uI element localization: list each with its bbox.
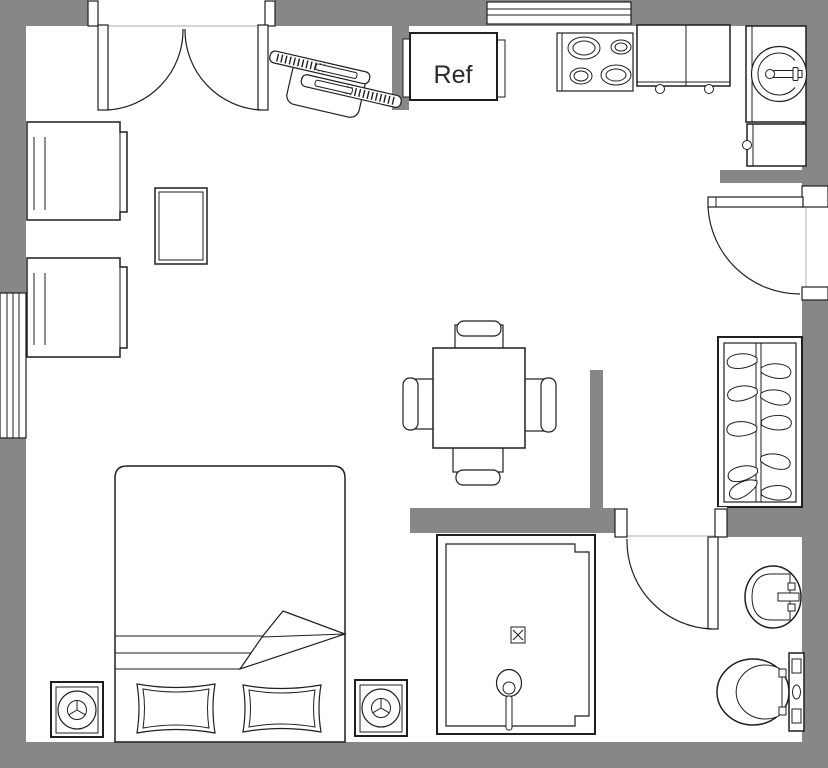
wall-bathroom-right <box>727 507 802 537</box>
door-leaf-left <box>98 25 108 110</box>
armchair-2 <box>27 258 127 357</box>
shower-enclosure <box>437 535 595 734</box>
dining-chair-top <box>455 321 503 351</box>
refrigerator: Ref <box>403 33 505 100</box>
stove <box>557 33 633 91</box>
wall-bathroom-left <box>410 508 615 533</box>
kitchen-window <box>487 2 631 24</box>
shower-drain <box>511 627 525 643</box>
wall-bathroom-vertical <box>590 370 603 510</box>
dining-chair-left <box>403 378 435 430</box>
dining-chair-right <box>523 378 556 432</box>
cabinet-knob <box>705 85 714 94</box>
flush-button <box>793 685 801 699</box>
side-table <box>155 188 207 264</box>
door-leaf-right <box>258 25 268 110</box>
door-leaf <box>708 197 803 207</box>
door-frame <box>715 509 727 537</box>
wall-bottom <box>0 742 828 768</box>
dining-chair-bottom <box>453 445 503 485</box>
door-frame <box>802 287 828 300</box>
refrigerator-label: Ref <box>434 61 473 89</box>
bathroom-sink <box>745 566 801 628</box>
speaker-left <box>51 682 103 737</box>
kitchen-sink <box>746 26 807 122</box>
door-frame-left <box>88 1 98 26</box>
dining-table <box>433 348 525 448</box>
wall-stub-entry <box>720 170 802 183</box>
door-frame <box>615 509 627 537</box>
floor-plan: Ref <box>0 0 828 768</box>
speaker-right <box>355 680 407 736</box>
kitchen-cabinet <box>637 25 730 94</box>
faucet <box>778 593 799 601</box>
wardrobe-closet <box>718 337 802 507</box>
bed <box>115 466 345 742</box>
armchair-1 <box>27 122 127 220</box>
cabinet-knob <box>743 141 752 150</box>
door-frame-right <box>265 1 275 26</box>
door-frame <box>802 186 828 207</box>
cabinet-knob <box>656 85 665 94</box>
pillow-left <box>137 684 215 733</box>
left-window <box>0 293 26 438</box>
door-leaf <box>708 537 718 629</box>
pillow-right <box>243 685 321 732</box>
base-cabinet <box>743 124 807 166</box>
floor-plan-drawing: Ref <box>0 0 828 768</box>
